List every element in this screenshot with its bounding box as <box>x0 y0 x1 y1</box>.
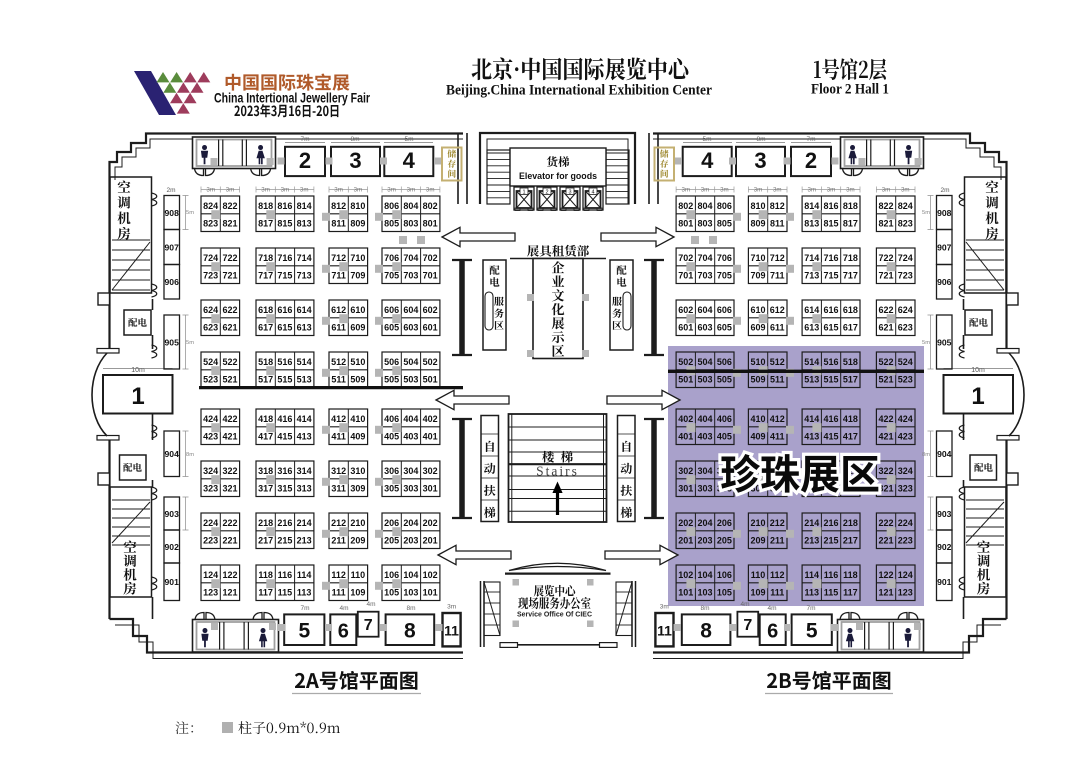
svg-text:5m: 5m <box>186 340 194 346</box>
svg-text:4: 4 <box>403 148 416 173</box>
svg-text:202: 202 <box>678 518 693 528</box>
svg-text:214: 214 <box>297 518 312 528</box>
svg-text:111: 111 <box>770 588 784 598</box>
svg-text:405: 405 <box>384 432 399 442</box>
svg-text:711: 711 <box>331 271 346 281</box>
svg-text:3: 3 <box>568 190 571 196</box>
svg-text:411: 411 <box>331 432 346 442</box>
svg-text:410: 410 <box>750 414 765 424</box>
svg-text:403: 403 <box>403 432 418 442</box>
svg-text:623: 623 <box>203 323 218 333</box>
svg-text:511: 511 <box>331 375 346 385</box>
svg-text:804: 804 <box>697 201 712 211</box>
svg-text:821: 821 <box>878 219 893 229</box>
svg-text:317: 317 <box>258 484 273 494</box>
svg-text:810: 810 <box>750 201 765 211</box>
svg-text:811: 811 <box>770 219 785 229</box>
svg-text:7: 7 <box>743 617 752 634</box>
svg-text:805: 805 <box>717 219 732 229</box>
svg-text:905: 905 <box>937 338 952 348</box>
svg-text:112: 112 <box>331 570 346 580</box>
svg-text:421: 421 <box>878 432 893 442</box>
svg-text:217: 217 <box>258 536 273 546</box>
svg-text:414: 414 <box>804 414 819 424</box>
svg-text:710: 710 <box>750 253 765 263</box>
svg-text:122: 122 <box>222 570 237 580</box>
svg-text:609: 609 <box>350 323 365 333</box>
svg-text:413: 413 <box>804 432 819 442</box>
svg-text:523: 523 <box>898 375 913 385</box>
svg-text:815: 815 <box>277 219 292 229</box>
svg-text:110: 110 <box>351 570 366 580</box>
svg-text:3m: 3m <box>387 187 396 194</box>
svg-text:211: 211 <box>331 536 346 546</box>
svg-text:613: 613 <box>804 323 819 333</box>
svg-text:902: 902 <box>937 542 952 552</box>
svg-text:703: 703 <box>697 271 712 281</box>
svg-text:606: 606 <box>384 305 399 315</box>
svg-text:709: 709 <box>750 271 765 281</box>
svg-text:723: 723 <box>203 271 218 281</box>
svg-text:610: 610 <box>350 305 365 315</box>
svg-text:618: 618 <box>258 305 273 315</box>
svg-text:417: 417 <box>258 432 273 442</box>
svg-text:3m: 3m <box>720 187 729 194</box>
svg-text:11: 11 <box>444 623 459 639</box>
svg-text:206: 206 <box>717 518 732 528</box>
svg-text:412: 412 <box>770 414 785 424</box>
svg-text:118: 118 <box>258 570 273 580</box>
svg-text:814: 814 <box>297 201 312 211</box>
svg-text:3m: 3m <box>354 187 363 194</box>
svg-text:4: 4 <box>701 148 714 173</box>
svg-text:821: 821 <box>222 219 237 229</box>
svg-text:Beijing.China International Ex: Beijing.China International Exhibition C… <box>446 83 712 99</box>
svg-text:424: 424 <box>203 414 218 424</box>
svg-text:304: 304 <box>697 466 712 476</box>
svg-text:201: 201 <box>678 536 693 546</box>
svg-text:209: 209 <box>350 536 365 546</box>
svg-text:715: 715 <box>823 271 838 281</box>
svg-text:717: 717 <box>843 271 858 281</box>
svg-text:624: 624 <box>203 305 218 315</box>
svg-text:323: 323 <box>898 484 913 494</box>
svg-text:604: 604 <box>697 305 712 315</box>
svg-text:203: 203 <box>403 536 418 546</box>
svg-text:223: 223 <box>203 536 218 546</box>
svg-text:124: 124 <box>203 570 218 580</box>
svg-text:622: 622 <box>222 305 237 315</box>
svg-text:314: 314 <box>297 466 312 476</box>
svg-text:721: 721 <box>878 271 893 281</box>
svg-text:423: 423 <box>203 432 218 442</box>
svg-text:907: 907 <box>937 243 952 253</box>
svg-text:510: 510 <box>750 357 765 367</box>
svg-text:3m: 3m <box>226 187 235 194</box>
svg-text:7m: 7m <box>300 136 309 143</box>
svg-text:711: 711 <box>770 271 785 281</box>
svg-text:518: 518 <box>258 357 273 367</box>
svg-text:523: 523 <box>203 375 218 385</box>
svg-text:218: 218 <box>843 518 858 528</box>
svg-text:102: 102 <box>423 570 438 580</box>
svg-text:221: 221 <box>878 536 893 546</box>
svg-text:205: 205 <box>717 536 732 546</box>
svg-text:906: 906 <box>165 277 180 287</box>
svg-text:513: 513 <box>297 375 312 385</box>
svg-text:Stairs: Stairs <box>536 463 579 478</box>
svg-text:318: 318 <box>258 466 273 476</box>
svg-text:522: 522 <box>878 357 893 367</box>
svg-text:815: 815 <box>823 219 838 229</box>
svg-text:4m: 4m <box>767 605 776 612</box>
svg-text:621: 621 <box>222 323 237 333</box>
svg-text:803: 803 <box>403 219 418 229</box>
svg-text:709: 709 <box>350 271 365 281</box>
svg-text:102: 102 <box>678 570 693 580</box>
svg-text:802: 802 <box>423 201 438 211</box>
svg-text:506: 506 <box>717 357 732 367</box>
svg-text:603: 603 <box>403 323 418 333</box>
svg-text:822: 822 <box>878 201 893 211</box>
svg-text:617: 617 <box>258 323 273 333</box>
svg-text:210: 210 <box>350 518 365 528</box>
svg-text:817: 817 <box>843 219 858 229</box>
svg-text:503: 503 <box>403 375 418 385</box>
svg-text:509: 509 <box>350 375 365 385</box>
svg-text:206: 206 <box>384 518 399 528</box>
svg-text:209: 209 <box>750 536 765 546</box>
svg-text:515: 515 <box>823 375 838 385</box>
svg-text:103: 103 <box>403 588 418 598</box>
svg-text:7m: 7m <box>806 136 815 143</box>
svg-text:416: 416 <box>823 414 838 424</box>
svg-text:201: 201 <box>423 536 438 546</box>
svg-text:3m: 3m <box>206 187 215 194</box>
svg-text:604: 604 <box>403 305 418 315</box>
svg-text:224: 224 <box>898 518 913 528</box>
svg-text:301: 301 <box>423 484 438 494</box>
svg-text:810: 810 <box>350 201 365 211</box>
svg-text:703: 703 <box>403 271 418 281</box>
svg-text:801: 801 <box>678 219 693 229</box>
svg-text:11: 11 <box>657 623 672 639</box>
svg-text:724: 724 <box>203 253 218 263</box>
svg-text:323: 323 <box>203 484 218 494</box>
svg-text:306: 306 <box>384 466 399 476</box>
svg-text:514: 514 <box>804 357 819 367</box>
svg-text:521: 521 <box>878 375 893 385</box>
svg-text:121: 121 <box>878 588 893 598</box>
svg-text:117: 117 <box>258 588 273 598</box>
svg-text:214: 214 <box>804 518 819 528</box>
svg-text:615: 615 <box>823 323 838 333</box>
svg-text:715: 715 <box>277 271 292 281</box>
svg-text:617: 617 <box>843 323 858 333</box>
svg-text:109: 109 <box>350 588 365 598</box>
svg-text:511: 511 <box>770 375 785 385</box>
svg-text:409: 409 <box>350 432 365 442</box>
svg-text:2m: 2m <box>166 187 175 194</box>
svg-text:905: 905 <box>165 338 180 348</box>
svg-text:222: 222 <box>222 518 237 528</box>
svg-text:3: 3 <box>349 148 361 173</box>
svg-text:818: 818 <box>843 201 858 211</box>
svg-text:602: 602 <box>423 305 438 315</box>
svg-text:110: 110 <box>751 570 766 580</box>
svg-text:418: 418 <box>258 414 273 424</box>
svg-text:412: 412 <box>331 414 346 424</box>
svg-text:212: 212 <box>770 518 785 528</box>
svg-text:6: 6 <box>338 621 349 643</box>
svg-text:303: 303 <box>403 484 418 494</box>
svg-text:823: 823 <box>898 219 913 229</box>
svg-text:415: 415 <box>277 432 292 442</box>
svg-text:713: 713 <box>804 271 819 281</box>
svg-text:501: 501 <box>423 375 438 385</box>
svg-text:906: 906 <box>937 277 952 287</box>
svg-text:3m: 3m <box>754 187 763 194</box>
svg-text:305: 305 <box>384 484 399 494</box>
svg-text:103: 103 <box>697 588 712 598</box>
svg-text:104: 104 <box>697 570 712 580</box>
svg-text:603: 603 <box>697 323 712 333</box>
svg-text:714: 714 <box>804 253 819 263</box>
svg-text:210: 210 <box>750 518 765 528</box>
svg-text:406: 406 <box>384 414 399 424</box>
svg-text:817: 817 <box>258 219 273 229</box>
svg-text:215: 215 <box>823 536 838 546</box>
svg-text:111: 111 <box>332 588 346 598</box>
svg-text:223: 223 <box>898 536 913 546</box>
svg-text:812: 812 <box>331 201 346 211</box>
svg-text:3m: 3m <box>773 187 782 194</box>
svg-text:202: 202 <box>423 518 438 528</box>
svg-text:3m: 3m <box>426 187 435 194</box>
svg-text:616: 616 <box>823 305 838 315</box>
svg-text:315: 315 <box>277 484 292 494</box>
svg-text:8m: 8m <box>186 452 194 458</box>
svg-text:113: 113 <box>297 588 312 598</box>
svg-text:611: 611 <box>770 323 785 333</box>
svg-text:822: 822 <box>222 201 237 211</box>
svg-text:903: 903 <box>165 509 180 519</box>
svg-text:123: 123 <box>898 588 913 598</box>
svg-text:811: 811 <box>331 219 346 229</box>
svg-text:409: 409 <box>750 432 765 442</box>
svg-text:3m: 3m <box>807 187 816 194</box>
svg-text:117: 117 <box>843 588 858 598</box>
svg-text:612: 612 <box>770 305 785 315</box>
svg-text:402: 402 <box>678 414 693 424</box>
svg-text:602: 602 <box>678 305 693 315</box>
svg-text:2m: 2m <box>940 187 949 194</box>
svg-text:823: 823 <box>203 219 218 229</box>
svg-text:521: 521 <box>222 375 237 385</box>
svg-text:517: 517 <box>258 375 273 385</box>
svg-text:721: 721 <box>222 271 237 281</box>
svg-text:116: 116 <box>278 570 293 580</box>
svg-text:7: 7 <box>364 617 373 634</box>
svg-text:101: 101 <box>423 588 438 598</box>
svg-text:3m: 3m <box>901 187 910 194</box>
svg-text:803: 803 <box>697 219 712 229</box>
svg-text:504: 504 <box>403 357 418 367</box>
svg-text:502: 502 <box>423 357 438 367</box>
svg-text:901: 901 <box>937 577 952 587</box>
svg-text:806: 806 <box>384 201 399 211</box>
svg-text:814: 814 <box>804 201 819 211</box>
svg-text:304: 304 <box>403 466 418 476</box>
svg-text:614: 614 <box>297 305 312 315</box>
svg-text:211: 211 <box>770 536 785 546</box>
svg-text:701: 701 <box>423 271 438 281</box>
svg-text:311: 311 <box>331 484 346 494</box>
svg-text:105: 105 <box>384 588 399 598</box>
svg-text:824: 824 <box>203 201 218 211</box>
svg-text:713: 713 <box>297 271 312 281</box>
svg-text:205: 205 <box>384 536 399 546</box>
svg-text:105: 105 <box>717 588 732 598</box>
svg-text:5m: 5m <box>922 340 930 346</box>
svg-text:113: 113 <box>805 588 820 598</box>
svg-text:212: 212 <box>331 518 346 528</box>
svg-text:3m: 3m <box>882 187 891 194</box>
svg-text:601: 601 <box>678 323 693 333</box>
svg-text:702: 702 <box>678 253 693 263</box>
svg-text:2: 2 <box>805 148 817 173</box>
svg-text:424: 424 <box>898 414 913 424</box>
svg-text:422: 422 <box>222 414 237 424</box>
svg-text:217: 217 <box>843 536 858 546</box>
svg-text:204: 204 <box>697 518 712 528</box>
svg-text:121: 121 <box>222 588 237 598</box>
svg-text:702: 702 <box>423 253 438 263</box>
svg-text:8m: 8m <box>756 136 765 143</box>
svg-text:502: 502 <box>678 357 693 367</box>
svg-text:522: 522 <box>222 357 237 367</box>
svg-text:324: 324 <box>203 466 218 476</box>
svg-text:1: 1 <box>971 383 984 410</box>
svg-text:504: 504 <box>697 357 712 367</box>
svg-text:8m: 8m <box>922 452 930 458</box>
svg-text:114: 114 <box>805 570 820 580</box>
svg-text:10m: 10m <box>131 367 145 374</box>
svg-text:510: 510 <box>350 357 365 367</box>
svg-text:505: 505 <box>717 375 732 385</box>
svg-text:203: 203 <box>697 536 712 546</box>
svg-text:8: 8 <box>700 620 712 643</box>
svg-text:701: 701 <box>678 271 693 281</box>
svg-text:705: 705 <box>384 271 399 281</box>
svg-text:5m: 5m <box>186 210 194 216</box>
svg-text:509: 509 <box>750 375 765 385</box>
svg-text:404: 404 <box>697 414 712 424</box>
svg-text:613: 613 <box>297 323 312 333</box>
svg-text:3m: 3m <box>660 604 669 611</box>
svg-text:723: 723 <box>898 271 913 281</box>
svg-text:3m: 3m <box>681 187 690 194</box>
svg-text:514: 514 <box>297 357 312 367</box>
svg-text:309: 309 <box>350 484 365 494</box>
svg-text:5: 5 <box>806 620 818 643</box>
svg-text:706: 706 <box>384 253 399 263</box>
svg-text:215: 215 <box>277 536 292 546</box>
svg-text:403: 403 <box>697 432 712 442</box>
svg-text:421: 421 <box>222 432 237 442</box>
svg-text:101: 101 <box>678 588 693 598</box>
svg-text:3m: 3m <box>846 187 855 194</box>
svg-text:2: 2 <box>545 190 548 196</box>
svg-text:624: 624 <box>898 305 913 315</box>
svg-text:816: 816 <box>277 201 292 211</box>
svg-text:6: 6 <box>767 621 778 643</box>
svg-text:904: 904 <box>165 449 180 459</box>
svg-text:1: 1 <box>522 190 525 196</box>
svg-text:610: 610 <box>750 305 765 315</box>
svg-text:805: 805 <box>384 219 399 229</box>
svg-text:704: 704 <box>697 253 712 263</box>
svg-text:4: 4 <box>591 190 594 196</box>
svg-text:112: 112 <box>770 570 785 580</box>
svg-text:503: 503 <box>697 375 712 385</box>
svg-text:406: 406 <box>717 414 732 424</box>
svg-text:213: 213 <box>804 536 819 546</box>
svg-text:8m: 8m <box>406 605 415 612</box>
svg-text:605: 605 <box>384 323 399 333</box>
svg-text:118: 118 <box>843 570 858 580</box>
svg-text:302: 302 <box>678 466 693 476</box>
svg-text:404: 404 <box>403 414 418 424</box>
svg-text:901: 901 <box>165 577 180 587</box>
svg-text:616: 616 <box>277 305 292 315</box>
svg-text:710: 710 <box>350 253 365 263</box>
svg-text:3m: 3m <box>827 187 836 194</box>
svg-text:724: 724 <box>898 253 913 263</box>
svg-text:1: 1 <box>131 383 144 410</box>
svg-text:705: 705 <box>717 271 732 281</box>
svg-text:322: 322 <box>878 466 893 476</box>
svg-text:8m: 8m <box>700 605 709 612</box>
svg-text:Service Office Of CIEC: Service Office Of CIEC <box>517 610 593 619</box>
svg-text:718: 718 <box>258 253 273 263</box>
svg-text:402: 402 <box>423 414 438 424</box>
svg-text:204: 204 <box>403 518 418 528</box>
svg-text:124: 124 <box>898 570 913 580</box>
svg-text:623: 623 <box>898 323 913 333</box>
svg-text:801: 801 <box>423 219 438 229</box>
svg-text:902: 902 <box>165 542 180 552</box>
svg-text:422: 422 <box>878 414 893 424</box>
svg-text:3m: 3m <box>334 187 343 194</box>
svg-text:410: 410 <box>350 414 365 424</box>
svg-text:10m: 10m <box>971 367 985 374</box>
svg-text:114: 114 <box>297 570 312 580</box>
svg-text:7m: 7m <box>806 605 815 612</box>
svg-text:806: 806 <box>717 201 732 211</box>
svg-text:816: 816 <box>823 201 838 211</box>
svg-text:4m: 4m <box>366 601 375 608</box>
svg-text:116: 116 <box>824 570 839 580</box>
svg-text:612: 612 <box>331 305 346 315</box>
svg-text:5: 5 <box>298 620 310 643</box>
svg-text:714: 714 <box>297 253 312 263</box>
svg-text:414: 414 <box>297 414 312 424</box>
svg-text:115: 115 <box>278 588 293 598</box>
svg-text:104: 104 <box>403 570 418 580</box>
svg-text:316: 316 <box>277 466 292 476</box>
svg-text:812: 812 <box>770 201 785 211</box>
